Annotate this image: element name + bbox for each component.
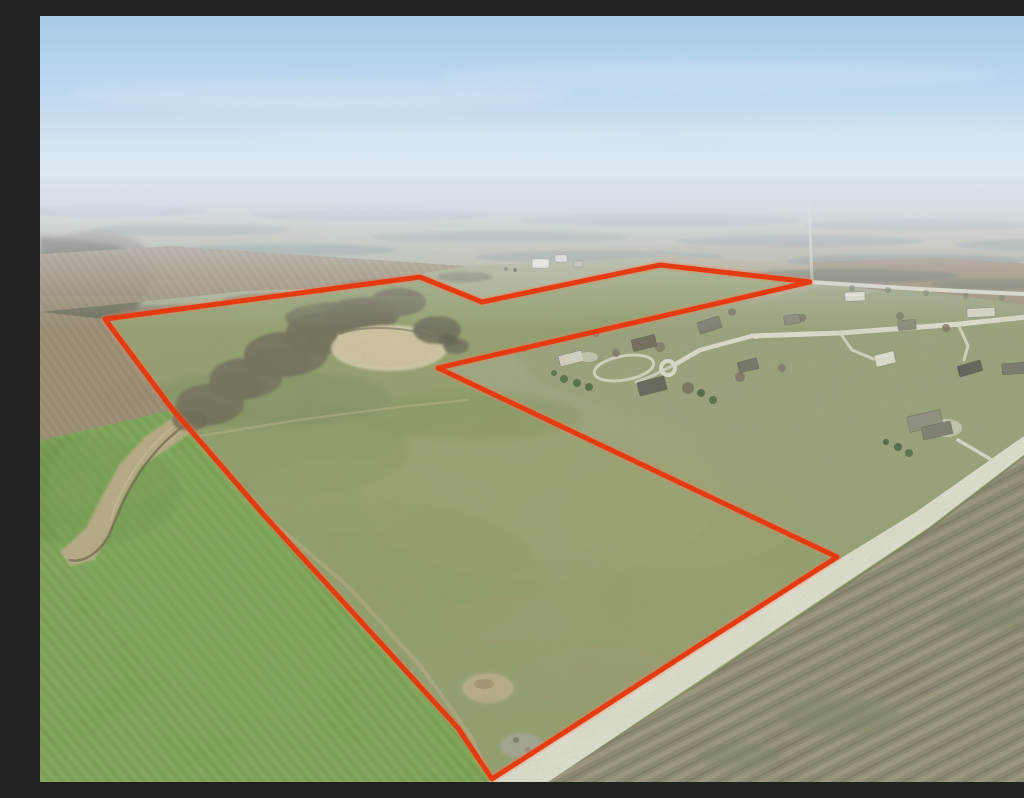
cloud-streak [70,78,570,110]
aerial-photo-canvas [40,16,1024,782]
aerial-photo [40,16,1024,782]
cloud-streak [240,126,680,150]
cloud-streak [440,60,1000,88]
haze-overlay-2 [40,176,1024,234]
mottle-overlay [40,296,1024,782]
